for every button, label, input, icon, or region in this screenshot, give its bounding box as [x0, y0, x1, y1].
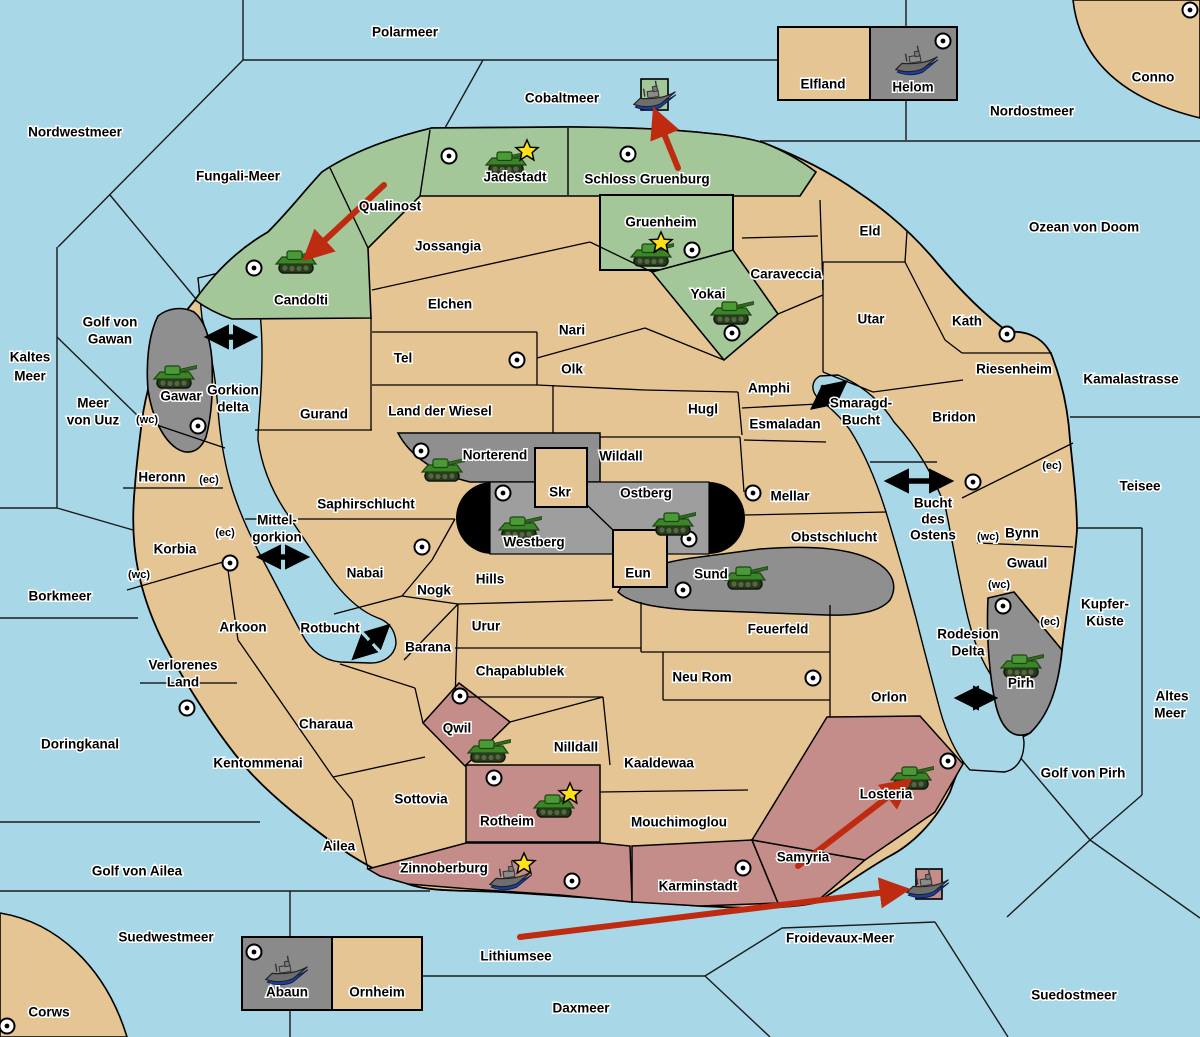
- supply-center-icon: [1183, 3, 1198, 18]
- territory-label: Mouchimoglou: [631, 815, 727, 830]
- supply-center-icon: [966, 475, 981, 490]
- territory-label: Sund: [694, 567, 728, 582]
- territory-label: Kath: [952, 314, 982, 329]
- territory-label: Zinnoberburg: [400, 861, 488, 876]
- sea-label: von Uuz: [67, 413, 120, 428]
- territory-label: Wildall: [599, 449, 642, 464]
- coast-tag-label: (wc): [988, 579, 1010, 591]
- territory-label: Nogk: [417, 583, 451, 598]
- territory-label: Eun: [625, 566, 651, 581]
- sea-label: Lithiumsee: [480, 949, 552, 964]
- territory-label: Ostberg: [620, 486, 672, 501]
- coast-tag-label: (ec): [199, 474, 219, 486]
- coast-tag-label: (ec): [1042, 460, 1062, 472]
- sea-label: Meer: [77, 396, 109, 411]
- territory-label: Gawar: [160, 389, 202, 404]
- territory-label: Pirh: [1008, 676, 1034, 691]
- sea-label: Golf von Pirh: [1041, 766, 1126, 781]
- territory-label: Norterend: [463, 448, 528, 463]
- territory-label: Sottovia: [394, 792, 448, 807]
- supply-center-icon: [996, 599, 1011, 614]
- territory-label: Qwil: [443, 721, 472, 736]
- supply-center-icon: [806, 671, 821, 686]
- sea-label: Teisee: [1119, 479, 1161, 494]
- territory-label: Jossangia: [415, 239, 482, 254]
- territory-label: Korbia: [154, 542, 197, 557]
- supply-center-icon: [415, 540, 430, 555]
- territory-label: Bridon: [932, 410, 976, 425]
- territory-label: Kaaldewaa: [624, 756, 694, 771]
- sea-label: Fungali-Meer: [196, 169, 281, 184]
- sea-label: Golf von: [83, 315, 138, 330]
- territory-label: Feuerfeld: [748, 622, 809, 637]
- territory-label: Nabai: [347, 566, 384, 581]
- sea-label: Ozean von Doom: [1029, 220, 1139, 235]
- territory-label: Heronn: [138, 470, 185, 485]
- territory-label: Amphi: [748, 381, 790, 396]
- territory-label: Helom: [892, 80, 933, 95]
- territory-label: Land: [167, 675, 199, 690]
- sea-label: Borkmeer: [28, 589, 92, 604]
- sea-label: Gorkion: [207, 383, 259, 398]
- territory-label: Ailea: [323, 839, 356, 854]
- supply-center-icon: [725, 326, 740, 341]
- territory-label: Mellar: [770, 489, 810, 504]
- territory-label: Chapablublek: [476, 664, 565, 679]
- coast-tag-label: (wc): [977, 531, 999, 543]
- territory-label: Utar: [857, 312, 885, 327]
- sea-label: Gawan: [88, 332, 132, 347]
- sea-label: Nordostmeer: [990, 104, 1075, 119]
- sea-label: Delta: [951, 644, 985, 659]
- territory-label: Charaua: [299, 717, 354, 732]
- territory-label: Samyria: [777, 850, 830, 865]
- territory-label: Karminstadt: [659, 879, 738, 894]
- sea-label: gorkion: [252, 530, 302, 545]
- sea-label: delta: [217, 400, 249, 415]
- sea-label: Polarmeer: [372, 25, 439, 40]
- territory-label: Rotheim: [480, 814, 534, 829]
- supply-center-icon: [746, 486, 761, 501]
- sea-label: Kupfer-: [1081, 597, 1129, 612]
- supply-center-icon: [0, 1019, 15, 1034]
- territory-label: Nari: [559, 323, 585, 338]
- sea-label: Nordwestmeer: [28, 125, 123, 140]
- territory-label: Land der Wiesel: [388, 404, 491, 419]
- sea-label: Suedwestmeer: [118, 930, 214, 945]
- supply-center-icon: [180, 701, 195, 716]
- territory-label: Nilldall: [554, 740, 598, 755]
- sea-label: Golf von Ailea: [92, 864, 183, 879]
- sea-label: Meer: [14, 369, 46, 384]
- coast-tag-label: (wc): [128, 569, 150, 581]
- sea-label: Bucht: [914, 496, 953, 511]
- territory-label: Arkoon: [219, 620, 266, 635]
- territory-label: Kentommenai: [213, 756, 302, 771]
- territory-label: Skr: [549, 485, 572, 500]
- sea-label: Rotbucht: [300, 621, 360, 636]
- supply-center-icon: [621, 147, 636, 162]
- territory-label: Tel: [394, 351, 413, 366]
- supply-center-icon: [685, 243, 700, 258]
- supply-center-icon: [676, 583, 691, 598]
- sea-label: des: [921, 512, 944, 527]
- sea-label: Kaltes: [10, 350, 51, 365]
- territory-label: Elchen: [428, 297, 472, 312]
- territory-label: Elfland: [800, 77, 845, 92]
- territory-label: Losteria: [860, 787, 913, 802]
- sea-label: Küste: [1086, 614, 1124, 629]
- sea-label: Conno: [1132, 70, 1175, 85]
- territory-label: Neu Rom: [672, 670, 731, 685]
- territory-label: Abaun: [266, 985, 308, 1000]
- territory-label: Riesenheim: [976, 362, 1052, 377]
- sea-label: Ostens: [910, 528, 956, 543]
- territory-label: Caraveccia: [750, 267, 822, 282]
- territory-label: Jadestadt: [483, 170, 547, 185]
- sea-label: Meer: [1154, 706, 1186, 721]
- territory-label: Olk: [561, 362, 583, 377]
- game-map[interactable]: PolarmeerNordwestmeerFungali-MeerCobaltm…: [0, 0, 1200, 1037]
- sea-label: Froidevaux-Meer: [786, 931, 895, 946]
- coast-tag-label: (ec): [1040, 616, 1060, 628]
- sea-label: Corws: [28, 1005, 69, 1020]
- supply-center-icon: [1000, 327, 1015, 342]
- territory-label: Bynn: [1005, 526, 1039, 541]
- territory-label: Yokai: [690, 287, 725, 302]
- territory-label: Saphirschlucht: [317, 497, 415, 512]
- sea-label: Daxmeer: [552, 1001, 610, 1016]
- supply-center-icon: [223, 556, 238, 571]
- territory-label: Gwaul: [1007, 556, 1048, 571]
- territory-label: Esmaladan: [749, 417, 820, 432]
- supply-center-icon: [487, 771, 502, 786]
- territory-label: Ornheim: [349, 985, 405, 1000]
- supply-center-icon: [936, 34, 951, 49]
- supply-center-icon: [565, 874, 580, 889]
- territory-label: Qualinost: [359, 199, 422, 214]
- territory-label: Gruenheim: [625, 215, 696, 230]
- territory-label: Obstschlucht: [791, 530, 878, 545]
- sea-label: Doringkanal: [41, 737, 119, 752]
- sea-label: Suedostmeer: [1031, 988, 1117, 1003]
- supply-center-icon: [736, 861, 751, 876]
- territory-label: Schloss Gruenburg: [584, 172, 709, 187]
- supply-center-icon: [941, 754, 956, 769]
- sea-label: Cobaltmeer: [525, 91, 600, 106]
- sea-label: Mittel-: [257, 513, 297, 528]
- sea-label: Kamalastrasse: [1083, 372, 1179, 387]
- territory-label: Westberg: [503, 535, 564, 550]
- coast-tag-label: (ec): [215, 527, 235, 539]
- supply-center-icon: [414, 444, 429, 459]
- territory-label: Gurand: [300, 407, 348, 422]
- sea-label: Rodesion: [937, 627, 999, 642]
- territory-label: Candolti: [274, 293, 328, 308]
- sea-label: Smaragd-: [830, 396, 892, 411]
- sea-label: Altes: [1155, 689, 1188, 704]
- territory-label: Hills: [476, 572, 505, 587]
- supply-center-icon: [442, 149, 457, 164]
- game-map-screen: PolarmeerNordwestmeerFungali-MeerCobaltm…: [0, 0, 1200, 1037]
- territory-label: Urur: [472, 619, 501, 634]
- territory-label: Hugl: [688, 402, 718, 417]
- supply-center-icon: [496, 486, 511, 501]
- territory-label: Orlon: [871, 690, 907, 705]
- supply-center-icon: [191, 419, 206, 434]
- coast-tag-label: (wc): [136, 414, 158, 426]
- supply-center-icon: [247, 945, 262, 960]
- sea-label: Bucht: [842, 413, 881, 428]
- supply-center-icon: [247, 261, 262, 276]
- supply-center-icon: [453, 689, 468, 704]
- supply-center-icon: [510, 353, 525, 368]
- territory-label: Eld: [859, 224, 880, 239]
- territory-label: Verlorenes: [148, 658, 217, 673]
- territory-label: Barana: [405, 640, 451, 655]
